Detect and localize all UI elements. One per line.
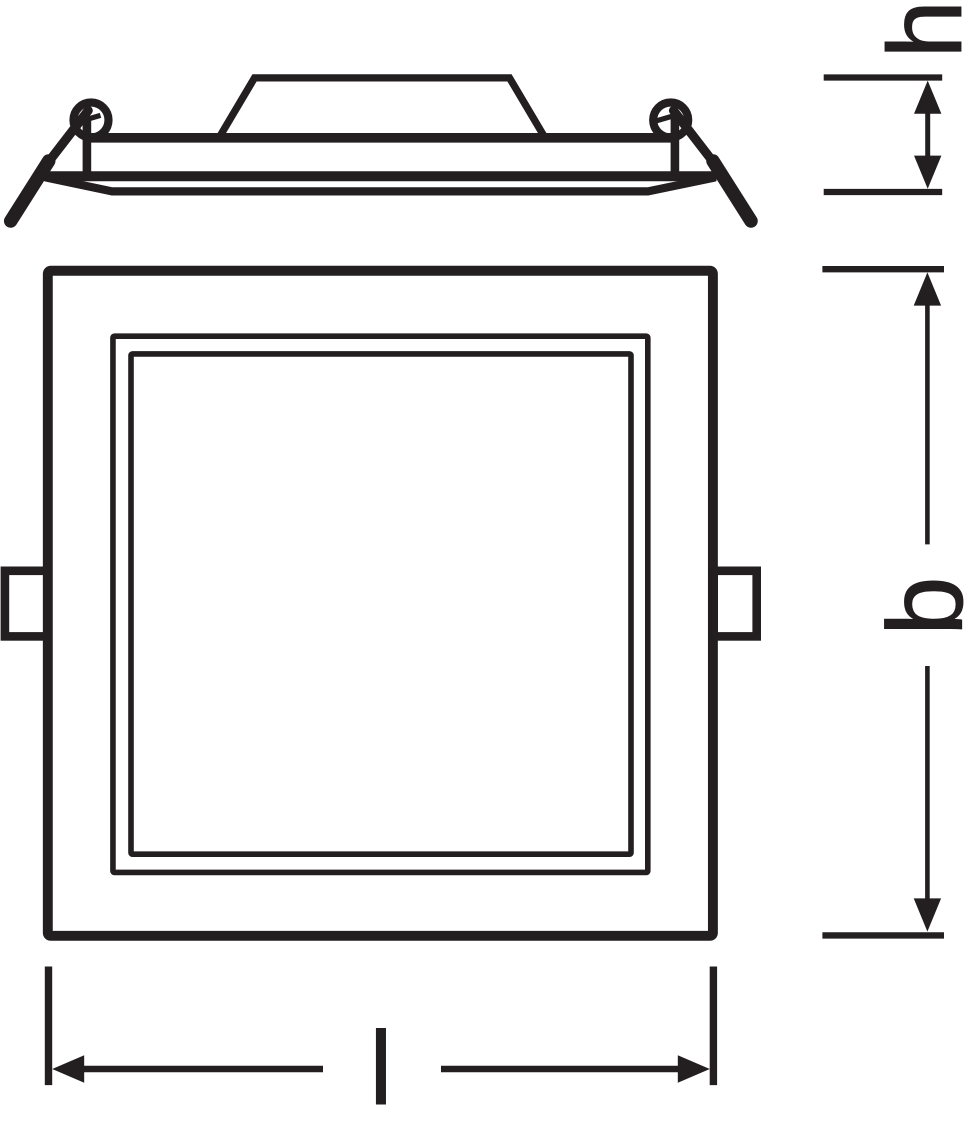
svg-text:b: b: [866, 577, 979, 636]
svg-text:l: l: [369, 1011, 392, 1125]
svg-text:h: h: [867, 0, 979, 58]
